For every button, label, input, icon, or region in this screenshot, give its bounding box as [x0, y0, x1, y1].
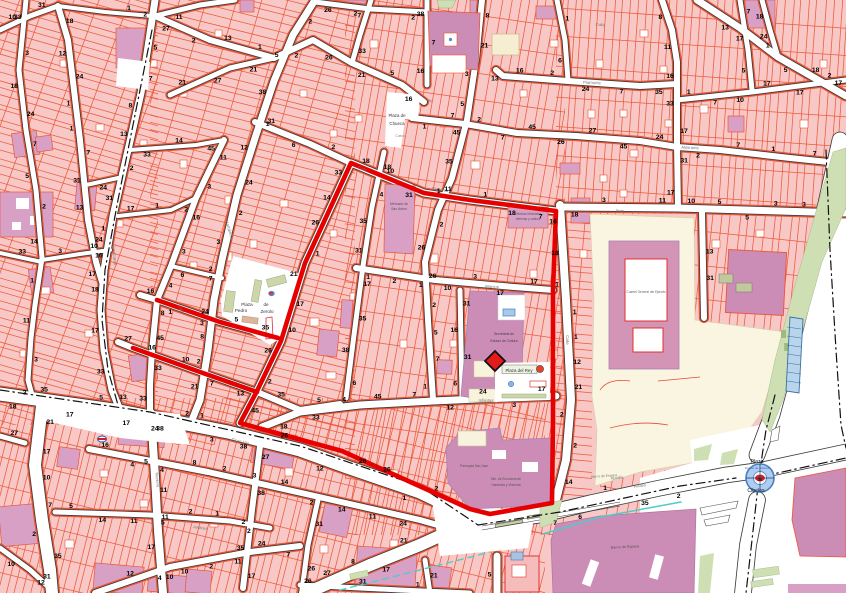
- svg-text:16: 16: [147, 288, 155, 295]
- svg-text:33: 33: [154, 365, 162, 372]
- svg-text:Parroquia San Jose: Parroquia San Jose: [460, 464, 488, 468]
- svg-text:7: 7: [209, 276, 213, 283]
- svg-text:Piamonte: Piamonte: [583, 80, 602, 86]
- svg-text:16: 16: [516, 67, 524, 74]
- svg-text:5: 5: [154, 45, 158, 52]
- svg-text:11: 11: [659, 197, 666, 204]
- svg-text:17: 17: [530, 279, 538, 286]
- svg-text:33: 33: [143, 152, 151, 159]
- svg-text:7: 7: [48, 502, 52, 509]
- svg-text:33: 33: [19, 249, 27, 256]
- svg-text:Pedro: Pedro: [235, 308, 248, 313]
- svg-text:2: 2: [242, 519, 246, 526]
- svg-text:31: 31: [463, 300, 471, 307]
- svg-text:11: 11: [445, 186, 452, 193]
- svg-text:2: 2: [42, 203, 46, 210]
- svg-text:45: 45: [374, 394, 382, 401]
- svg-text:17: 17: [496, 290, 504, 297]
- svg-text:18: 18: [280, 424, 288, 431]
- svg-text:10: 10: [166, 574, 174, 581]
- svg-text:24: 24: [258, 541, 266, 548]
- svg-text:10: 10: [387, 168, 395, 175]
- svg-text:26: 26: [324, 7, 332, 14]
- svg-text:7: 7: [412, 392, 416, 399]
- svg-text:13: 13: [237, 391, 245, 398]
- svg-text:Oficinas Ministerio: Oficinas Ministerio: [515, 212, 541, 216]
- svg-text:18: 18: [551, 250, 559, 257]
- svg-text:1: 1: [555, 282, 559, 289]
- svg-text:17: 17: [296, 301, 304, 308]
- svg-text:3: 3: [512, 402, 516, 409]
- svg-text:1: 1: [573, 309, 577, 316]
- svg-text:24: 24: [245, 179, 253, 186]
- svg-text:2: 2: [696, 153, 700, 160]
- svg-text:7: 7: [620, 89, 624, 96]
- svg-text:3: 3: [58, 248, 62, 255]
- svg-text:45: 45: [620, 144, 628, 151]
- svg-text:2: 2: [310, 500, 314, 507]
- svg-text:45: 45: [528, 124, 536, 131]
- svg-text:18: 18: [11, 83, 19, 90]
- svg-text:24: 24: [100, 184, 108, 191]
- svg-text:1: 1: [403, 495, 407, 502]
- svg-text:12: 12: [126, 570, 134, 577]
- svg-text:27: 27: [124, 336, 132, 343]
- svg-text:Zerolo: Zerolo: [260, 309, 273, 314]
- svg-text:35: 35: [641, 500, 649, 507]
- svg-text:13: 13: [120, 131, 128, 138]
- svg-text:3: 3: [217, 239, 221, 246]
- svg-text:5: 5: [99, 395, 103, 402]
- svg-text:31: 31: [268, 118, 276, 125]
- svg-text:10: 10: [688, 198, 696, 205]
- svg-text:2: 2: [828, 73, 832, 80]
- svg-text:3: 3: [774, 200, 778, 207]
- svg-text:33: 33: [139, 396, 147, 403]
- svg-text:45: 45: [251, 408, 259, 415]
- svg-text:21: 21: [430, 573, 438, 580]
- svg-text:1: 1: [169, 309, 173, 316]
- svg-text:4: 4: [130, 462, 134, 469]
- svg-text:11: 11: [220, 155, 227, 162]
- svg-text:17: 17: [680, 128, 688, 135]
- svg-text:Chueca: Chueca: [389, 121, 405, 126]
- svg-text:5: 5: [784, 67, 788, 74]
- svg-text:27: 27: [323, 570, 331, 577]
- svg-text:12: 12: [573, 359, 581, 366]
- svg-text:Plaza de: Plaza de: [388, 113, 406, 118]
- svg-text:14: 14: [99, 517, 107, 524]
- svg-text:4: 4: [160, 467, 164, 474]
- svg-text:8: 8: [486, 13, 490, 20]
- svg-text:16: 16: [405, 96, 413, 103]
- svg-text:7: 7: [713, 100, 717, 107]
- svg-text:24: 24: [201, 309, 209, 316]
- svg-text:10: 10: [43, 475, 51, 482]
- svg-text:1: 1: [437, 188, 441, 195]
- svg-text:Cuartel General del Ejercito: Cuartel General del Ejercito: [626, 290, 665, 294]
- svg-text:33: 33: [358, 48, 366, 55]
- svg-text:21: 21: [191, 383, 199, 390]
- svg-text:1: 1: [127, 5, 131, 12]
- svg-text:24: 24: [399, 520, 407, 527]
- svg-text:2: 2: [189, 509, 193, 516]
- svg-text:2: 2: [192, 37, 196, 44]
- svg-text:5: 5: [488, 572, 492, 579]
- svg-text:2: 2: [247, 528, 251, 535]
- svg-text:2: 2: [239, 210, 243, 217]
- svg-text:26: 26: [264, 347, 272, 354]
- svg-text:14: 14: [338, 506, 346, 513]
- svg-text:Min. de Economia de: Min. de Economia de: [491, 477, 521, 481]
- svg-text:2: 2: [477, 116, 481, 123]
- svg-text:33: 33: [312, 415, 320, 422]
- svg-text:3: 3: [23, 390, 27, 397]
- svg-text:38: 38: [417, 11, 425, 18]
- svg-text:7: 7: [501, 135, 505, 142]
- svg-text:17: 17: [43, 448, 51, 455]
- svg-text:16: 16: [666, 73, 674, 80]
- svg-text:16: 16: [451, 327, 459, 334]
- svg-text:33: 33: [335, 169, 343, 176]
- svg-text:21: 21: [575, 384, 583, 391]
- svg-text:31: 31: [706, 275, 714, 282]
- svg-text:3: 3: [25, 50, 29, 57]
- svg-text:Plaza: Plaza: [241, 302, 253, 307]
- svg-text:1: 1: [155, 203, 159, 210]
- svg-text:1: 1: [483, 191, 487, 198]
- svg-text:1: 1: [316, 251, 320, 258]
- svg-text:7: 7: [33, 141, 37, 148]
- svg-text:35: 35: [277, 392, 285, 399]
- svg-text:26: 26: [418, 244, 426, 251]
- svg-text:5: 5: [745, 215, 749, 222]
- svg-text:1: 1: [200, 412, 204, 419]
- svg-text:26: 26: [359, 458, 367, 465]
- svg-text:45: 45: [207, 145, 215, 152]
- svg-text:31: 31: [38, 2, 46, 9]
- svg-text:8: 8: [161, 310, 165, 317]
- svg-text:Hacienda y Vivienda: Hacienda y Vivienda: [491, 483, 520, 487]
- svg-text:Marcos: Marcos: [485, 284, 499, 289]
- svg-text:33: 33: [666, 101, 674, 108]
- svg-text:3: 3: [34, 357, 38, 364]
- svg-text:7: 7: [747, 9, 751, 16]
- svg-text:2: 2: [268, 379, 272, 386]
- svg-text:1: 1: [423, 383, 427, 390]
- svg-text:1: 1: [419, 282, 423, 289]
- svg-text:17: 17: [835, 80, 843, 87]
- svg-text:2: 2: [130, 165, 134, 172]
- svg-text:3: 3: [602, 197, 606, 204]
- svg-text:14: 14: [565, 479, 573, 486]
- svg-text:35: 35: [359, 316, 367, 323]
- svg-text:5: 5: [235, 316, 239, 323]
- svg-text:17: 17: [89, 271, 97, 278]
- svg-text:16: 16: [549, 218, 557, 225]
- svg-text:7: 7: [432, 40, 436, 47]
- svg-text:31: 31: [316, 521, 324, 528]
- svg-text:10: 10: [9, 14, 17, 21]
- svg-text:8: 8: [129, 103, 133, 110]
- svg-text:24: 24: [656, 134, 664, 141]
- svg-text:24: 24: [76, 74, 84, 81]
- svg-text:8: 8: [193, 459, 197, 466]
- svg-text:17: 17: [66, 411, 74, 418]
- svg-text:Secretaria de: Secretaria de: [494, 332, 514, 336]
- svg-text:1: 1: [70, 125, 74, 132]
- svg-text:17: 17: [736, 36, 744, 43]
- svg-text:11: 11: [175, 14, 182, 21]
- svg-text:San Anton: San Anton: [391, 207, 407, 211]
- svg-text:6: 6: [558, 58, 562, 65]
- svg-text:35: 35: [40, 387, 48, 394]
- svg-text:10: 10: [90, 243, 98, 250]
- svg-text:Fuente de Cibeles: Fuente de Cibeles: [745, 466, 770, 470]
- svg-text:5: 5: [390, 70, 394, 77]
- svg-text:14: 14: [30, 239, 38, 246]
- svg-text:17: 17: [127, 206, 135, 213]
- svg-text:26: 26: [383, 467, 391, 474]
- svg-text:1: 1: [603, 485, 607, 492]
- svg-text:31: 31: [106, 195, 114, 202]
- svg-text:Plaza del Rey: Plaza del Rey: [505, 368, 533, 373]
- svg-text:5: 5: [161, 520, 165, 527]
- svg-text:1: 1: [771, 146, 775, 153]
- svg-text:4: 4: [158, 575, 162, 582]
- svg-text:17: 17: [763, 81, 771, 88]
- svg-text:27: 27: [11, 430, 19, 437]
- svg-text:17: 17: [538, 386, 546, 393]
- svg-text:3: 3: [802, 201, 806, 208]
- svg-text:21: 21: [179, 79, 187, 86]
- svg-text:26: 26: [325, 55, 333, 62]
- svg-text:17: 17: [382, 566, 390, 573]
- svg-text:2: 2: [185, 410, 189, 417]
- svg-text:3: 3: [207, 184, 211, 191]
- svg-text:5: 5: [742, 68, 746, 75]
- svg-text:26: 26: [304, 578, 312, 585]
- svg-text:13: 13: [491, 75, 499, 82]
- svg-text:8: 8: [659, 14, 663, 21]
- svg-text:Estado de Cultura: Estado de Cultura: [490, 339, 517, 343]
- svg-text:27: 27: [262, 454, 270, 461]
- svg-text:6: 6: [181, 272, 185, 279]
- svg-text:11: 11: [160, 487, 167, 494]
- svg-text:24: 24: [760, 34, 768, 41]
- svg-text:17: 17: [123, 420, 131, 427]
- svg-text:38: 38: [156, 426, 164, 433]
- svg-text:Cueca: Cueca: [395, 134, 404, 138]
- svg-text:2: 2: [435, 485, 439, 492]
- svg-text:26: 26: [429, 273, 437, 280]
- svg-text:21: 21: [250, 66, 258, 73]
- svg-text:38: 38: [257, 490, 265, 497]
- svg-text:10: 10: [182, 356, 190, 363]
- svg-text:2: 2: [197, 358, 201, 365]
- svg-text:27: 27: [162, 25, 170, 32]
- svg-text:18: 18: [812, 67, 820, 74]
- svg-text:Almirante: Almirante: [681, 145, 700, 151]
- svg-text:defensa y cultura: defensa y cultura: [516, 217, 541, 221]
- svg-text:31: 31: [355, 247, 363, 254]
- svg-text:1: 1: [215, 511, 219, 518]
- svg-text:17: 17: [148, 544, 156, 551]
- svg-text:5: 5: [317, 397, 321, 404]
- svg-text:38: 38: [240, 444, 248, 451]
- svg-text:2: 2: [209, 266, 213, 273]
- svg-text:16: 16: [148, 344, 156, 351]
- svg-text:1: 1: [416, 581, 420, 588]
- svg-text:35: 35: [262, 324, 270, 331]
- svg-text:1: 1: [366, 274, 370, 281]
- svg-text:4: 4: [342, 396, 346, 403]
- svg-text:18: 18: [756, 14, 764, 21]
- svg-text:3: 3: [200, 320, 204, 327]
- svg-text:7: 7: [357, 13, 361, 20]
- svg-text:2: 2: [432, 302, 436, 309]
- svg-text:6: 6: [453, 381, 457, 388]
- svg-text:14: 14: [323, 194, 331, 201]
- svg-text:18: 18: [508, 210, 516, 217]
- svg-text:24: 24: [582, 86, 590, 93]
- svg-text:3: 3: [473, 274, 477, 281]
- svg-text:7: 7: [813, 151, 817, 158]
- svg-text:17: 17: [248, 573, 256, 580]
- svg-text:27: 27: [214, 78, 222, 85]
- svg-text:5: 5: [434, 330, 438, 337]
- svg-text:24: 24: [27, 111, 35, 118]
- svg-text:3: 3: [465, 71, 469, 78]
- svg-text:1: 1: [423, 124, 427, 131]
- svg-text:27: 27: [589, 127, 597, 134]
- svg-text:Mercado de: Mercado de: [390, 202, 408, 206]
- svg-text:2: 2: [209, 563, 213, 570]
- svg-text:11: 11: [130, 518, 137, 525]
- svg-text:8: 8: [200, 334, 204, 341]
- svg-text:21: 21: [290, 271, 298, 278]
- svg-text:6: 6: [292, 142, 296, 149]
- svg-text:7: 7: [451, 113, 455, 120]
- svg-text:1: 1: [687, 89, 691, 96]
- svg-text:2: 2: [332, 144, 336, 151]
- svg-text:1: 1: [566, 16, 570, 23]
- svg-text:18: 18: [571, 212, 579, 219]
- svg-text:21: 21: [358, 72, 366, 79]
- svg-text:2: 2: [184, 206, 188, 213]
- svg-text:35: 35: [237, 545, 245, 552]
- svg-text:11: 11: [23, 318, 30, 325]
- svg-text:31: 31: [464, 354, 472, 361]
- svg-text:31: 31: [73, 178, 81, 185]
- svg-text:12: 12: [59, 50, 67, 57]
- svg-text:14: 14: [281, 479, 289, 486]
- svg-text:26: 26: [557, 139, 565, 146]
- svg-text:7: 7: [736, 142, 740, 149]
- svg-text:16: 16: [193, 214, 201, 221]
- svg-text:21: 21: [46, 419, 54, 426]
- svg-text:7: 7: [86, 150, 90, 157]
- svg-text:2: 2: [308, 19, 312, 26]
- svg-text:31: 31: [359, 579, 367, 586]
- svg-text:2: 2: [440, 222, 444, 229]
- svg-text:1: 1: [766, 42, 770, 49]
- svg-text:Calle: Calle: [565, 335, 570, 345]
- svg-text:10: 10: [288, 327, 296, 334]
- svg-text:45: 45: [156, 335, 164, 342]
- svg-text:4: 4: [169, 283, 173, 290]
- svg-text:1: 1: [102, 225, 106, 232]
- svg-text:10: 10: [7, 561, 15, 568]
- svg-text:16: 16: [95, 252, 103, 259]
- svg-text:5: 5: [275, 52, 279, 59]
- svg-text:10: 10: [181, 568, 189, 575]
- svg-text:21: 21: [400, 538, 408, 545]
- svg-text:7: 7: [553, 520, 557, 527]
- svg-text:31: 31: [405, 192, 413, 199]
- svg-text:10: 10: [444, 285, 452, 292]
- svg-text:1: 1: [258, 44, 262, 51]
- svg-text:5: 5: [460, 101, 464, 108]
- svg-text:14: 14: [175, 137, 183, 144]
- svg-text:de: de: [758, 477, 763, 482]
- svg-text:38: 38: [342, 347, 350, 354]
- svg-text:2: 2: [32, 531, 36, 538]
- svg-text:7: 7: [210, 381, 214, 388]
- svg-text:1: 1: [67, 100, 71, 107]
- svg-text:12: 12: [240, 145, 248, 152]
- svg-text:24: 24: [479, 388, 487, 395]
- svg-text:35: 35: [655, 89, 663, 96]
- svg-text:de: de: [263, 302, 269, 307]
- svg-text:2: 2: [560, 411, 564, 418]
- svg-text:5: 5: [718, 199, 722, 206]
- svg-text:17: 17: [363, 281, 371, 288]
- svg-text:18: 18: [362, 158, 370, 165]
- svg-text:2: 2: [550, 70, 554, 77]
- svg-text:7: 7: [149, 76, 153, 83]
- svg-text:1: 1: [574, 334, 578, 341]
- svg-text:2: 2: [295, 52, 299, 59]
- svg-text:12: 12: [446, 405, 454, 412]
- svg-text:26: 26: [281, 432, 289, 439]
- svg-text:2: 2: [411, 15, 415, 22]
- svg-text:13: 13: [224, 35, 232, 42]
- svg-text:17: 17: [796, 89, 804, 96]
- svg-text:3: 3: [210, 437, 214, 444]
- svg-text:18: 18: [9, 403, 17, 410]
- svg-text:10: 10: [736, 97, 744, 104]
- svg-text:5: 5: [69, 503, 73, 510]
- svg-text:2: 2: [573, 443, 577, 450]
- svg-text:6: 6: [353, 380, 357, 387]
- svg-text:2: 2: [393, 278, 397, 285]
- svg-text:11: 11: [369, 513, 376, 520]
- svg-text:3: 3: [182, 248, 186, 255]
- svg-text:26: 26: [308, 565, 316, 572]
- svg-text:7: 7: [539, 214, 543, 221]
- svg-text:16: 16: [101, 442, 109, 449]
- svg-text:Calle: Calle: [595, 22, 605, 28]
- svg-text:13: 13: [721, 24, 729, 31]
- svg-text:18: 18: [66, 18, 74, 25]
- svg-text:3: 3: [253, 472, 257, 479]
- svg-text:17: 17: [667, 189, 675, 196]
- svg-text:7: 7: [286, 552, 290, 559]
- svg-text:38: 38: [259, 89, 267, 96]
- svg-text:35: 35: [360, 218, 368, 225]
- svg-text:11: 11: [664, 44, 671, 51]
